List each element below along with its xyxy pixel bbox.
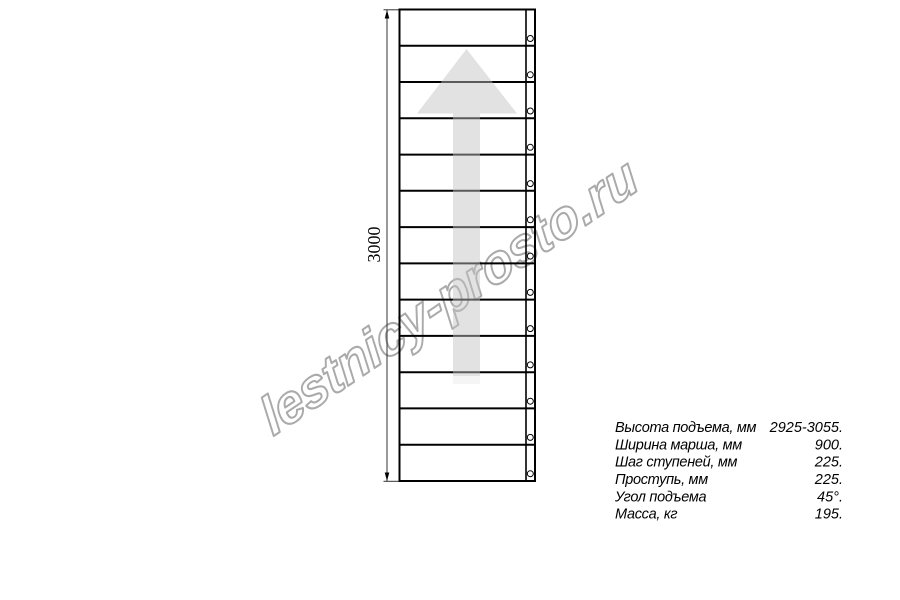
svg-text:45°.: 45°. — [817, 489, 843, 505]
svg-text:225.: 225. — [814, 472, 843, 488]
svg-text:Масса, кг: Масса, кг — [615, 507, 677, 523]
svg-text:Шаг ступеней, мм: Шаг ступеней, мм — [615, 455, 737, 471]
svg-text:225.: 225. — [814, 455, 843, 471]
svg-text:3000: 3000 — [364, 227, 384, 263]
svg-text:Высота подъема, мм: Высота подъема, мм — [615, 420, 757, 436]
svg-text:900.: 900. — [815, 437, 843, 453]
svg-text:Проступь, мм: Проступь, мм — [615, 472, 708, 488]
svg-text:Ширина марша, мм: Ширина марша, мм — [615, 437, 742, 453]
svg-text:Угол подъема: Угол подъема — [614, 489, 706, 505]
svg-text:195.: 195. — [815, 507, 843, 523]
svg-text:2925-3055.: 2925-3055. — [769, 420, 843, 436]
